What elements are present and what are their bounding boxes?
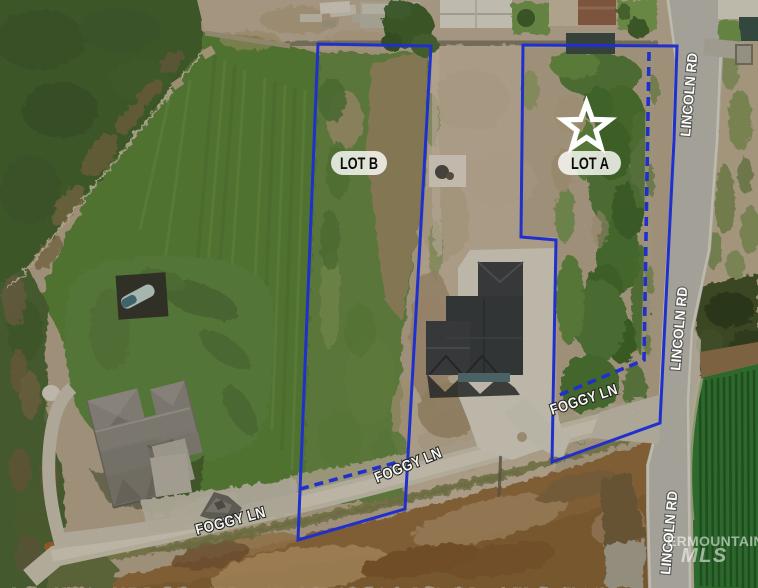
svg-text:LOT A: LOT A (571, 155, 609, 173)
svg-text:MLS: MLS (681, 545, 728, 567)
svg-text:LOT B: LOT B (340, 155, 378, 173)
